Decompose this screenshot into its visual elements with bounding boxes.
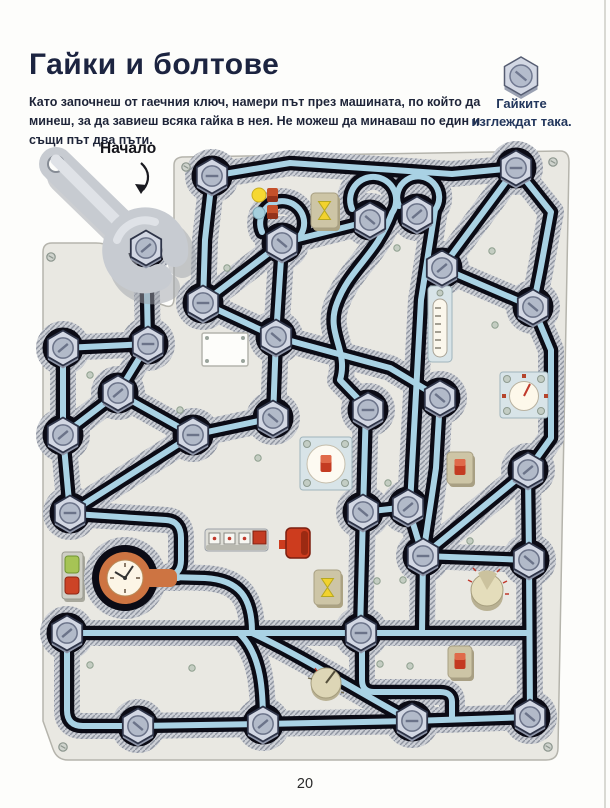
screw-icon	[255, 455, 261, 461]
green-red-button-panel-icon	[62, 552, 85, 602]
screw-icon	[87, 372, 93, 378]
screw-icon	[224, 265, 230, 271]
screw-icon	[544, 743, 552, 751]
screw-icon	[400, 577, 406, 583]
hourglass-toggle-icon	[311, 193, 340, 231]
nut-legend-icon	[505, 57, 538, 99]
page-title: Гайки и болтове	[29, 48, 279, 82]
dial-gauge-icon	[500, 372, 548, 418]
screw-icon	[182, 163, 190, 171]
instructions-text: Като започнеш от гаечния ключ, намери пъ…	[29, 93, 481, 150]
screw-icon	[377, 661, 383, 667]
screw-icon	[407, 663, 413, 669]
book-page: Гайки и болтове Като започнеш от гаечния…	[0, 0, 610, 808]
screw-icon	[374, 578, 380, 584]
screw-icon	[189, 665, 195, 671]
button-strip-icon	[205, 529, 268, 551]
screw-icon	[492, 322, 498, 328]
screw-icon	[177, 407, 183, 413]
screw-icon	[59, 743, 67, 751]
page-edge-line	[604, 0, 606, 808]
screw-icon	[549, 158, 557, 166]
screw-icon	[87, 662, 93, 668]
screw-icon	[467, 538, 473, 544]
legend-caption-line1: Гайките	[444, 95, 599, 113]
round-button-panel-icon	[300, 437, 352, 490]
vertical-gauge-icon	[428, 286, 452, 362]
screw-icon	[394, 245, 400, 251]
start-arrow-icon	[135, 163, 148, 194]
legend-caption: Гайките изглеждат така.	[444, 95, 599, 130]
start-label: Начало	[100, 140, 156, 158]
label-plate-icon	[202, 333, 248, 366]
screw-icon	[489, 248, 495, 254]
page-number: 20	[0, 776, 610, 792]
rocker-switch-icon	[448, 646, 474, 681]
screw-icon	[47, 253, 55, 261]
screw-icon	[385, 480, 391, 486]
rocker-switch-icon	[447, 452, 475, 487]
legend-caption-line2: изглеждат така.	[444, 113, 599, 131]
hourglass-toggle-icon	[314, 570, 343, 608]
